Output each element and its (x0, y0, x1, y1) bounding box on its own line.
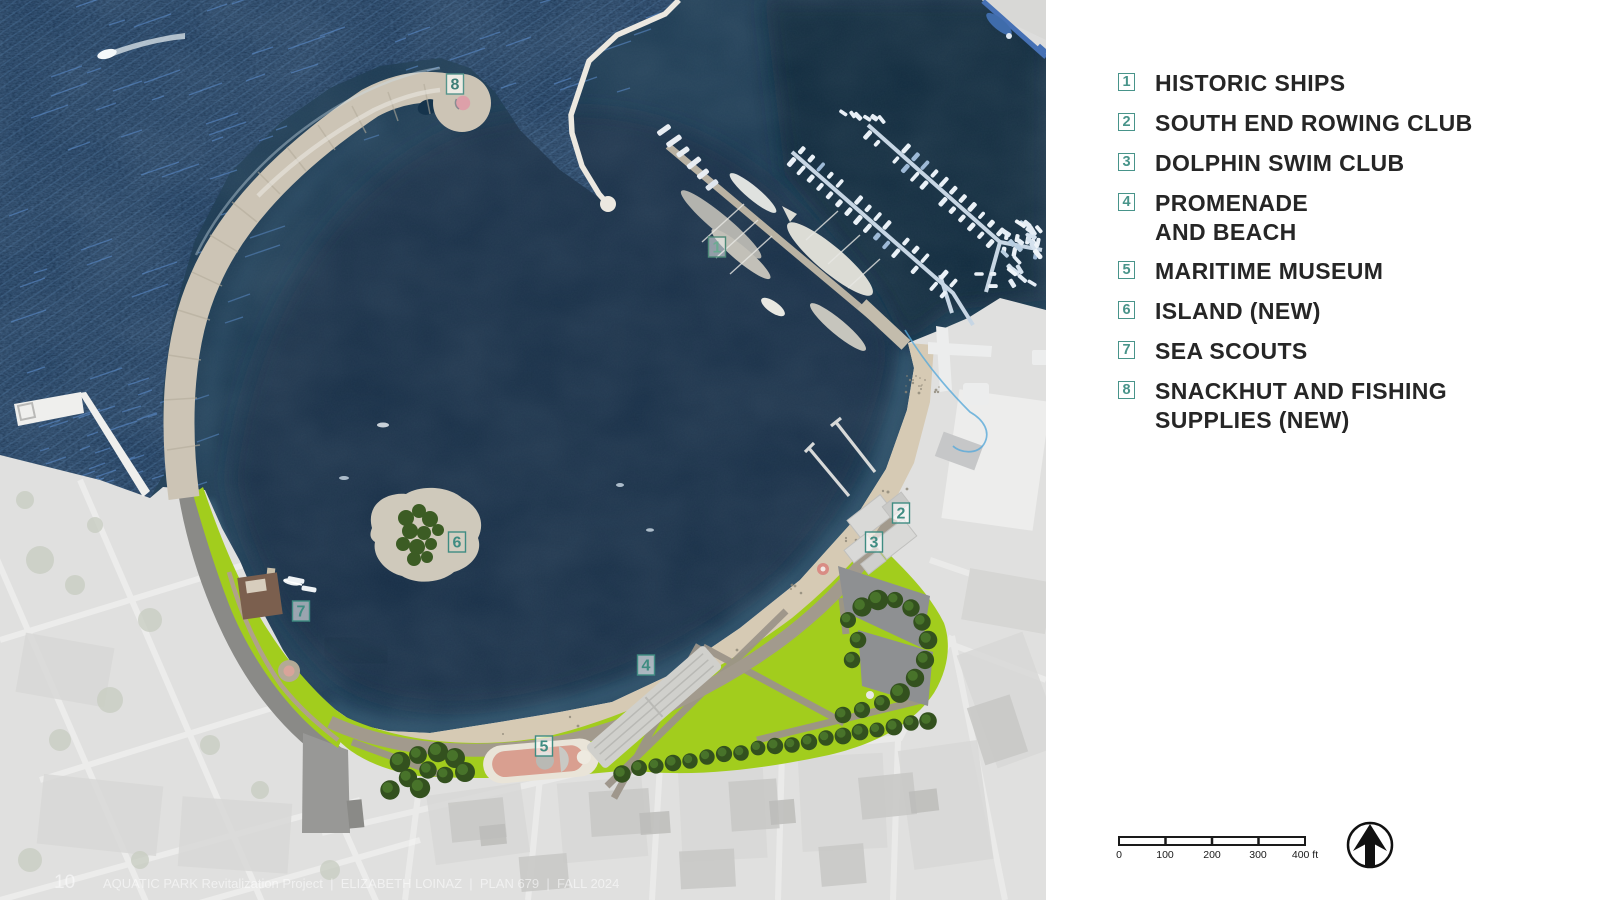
svg-text:0: 0 (1116, 849, 1122, 861)
svg-text:200: 200 (1203, 849, 1221, 861)
svg-text:AQUATIC PARK Revitalization Pr: AQUATIC PARK Revitalization Project | EL… (103, 876, 619, 891)
svg-text:2: 2 (897, 506, 906, 523)
svg-text:400 ft: 400 ft (1292, 849, 1318, 861)
svg-text:5: 5 (540, 739, 549, 756)
svg-text:100: 100 (1156, 849, 1174, 861)
svg-text:4: 4 (642, 658, 651, 675)
svg-text:7: 7 (297, 604, 306, 621)
svg-text:1: 1 (713, 240, 722, 257)
svg-text:3: 3 (870, 535, 879, 552)
svg-text:300: 300 (1249, 849, 1267, 861)
svg-text:6: 6 (453, 535, 462, 552)
svg-text:10: 10 (54, 872, 75, 893)
svg-text:8: 8 (451, 77, 460, 94)
